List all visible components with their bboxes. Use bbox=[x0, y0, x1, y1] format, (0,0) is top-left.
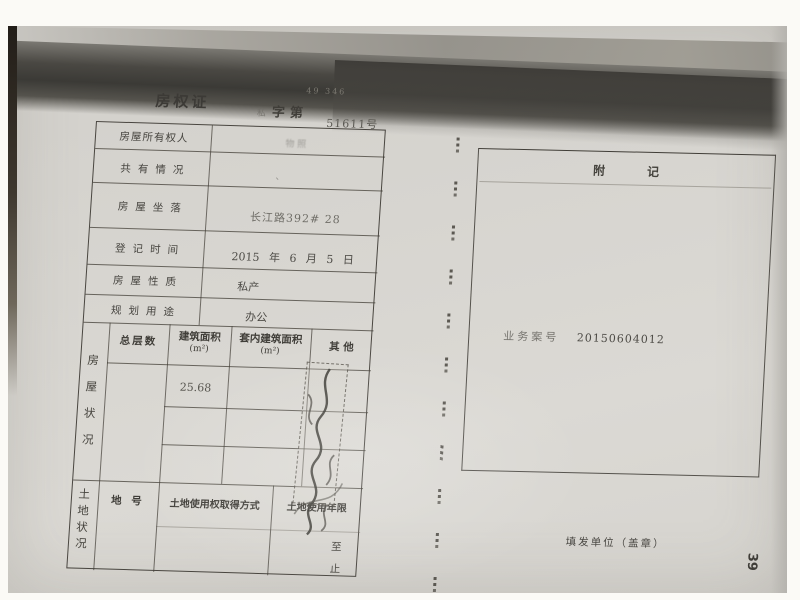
annex-header-char-b: 记 bbox=[647, 163, 660, 180]
grid-line bbox=[153, 324, 170, 572]
header-other: 其 他 bbox=[312, 341, 371, 356]
case-number-row: 业务案号 20150604012 bbox=[503, 328, 665, 348]
certificate-right-page: 附 记 业务案号 20150604012 填发单位（盖章） 39 bbox=[8, 26, 787, 593]
grid-line bbox=[107, 362, 371, 371]
annex-header-underline bbox=[479, 181, 771, 189]
scanned-document-page: 房权证 私 字第 51611号 49 346 bbox=[0, 0, 800, 600]
header-built-area-unit: (m²) bbox=[170, 343, 229, 356]
header-inner-area-unit: (m²) bbox=[232, 345, 309, 358]
tenure-to-label: 至 bbox=[331, 539, 342, 554]
grid-line bbox=[301, 328, 312, 486]
case-number-label: 业务案号 bbox=[503, 330, 560, 344]
issuer-label: 填发单位（盖章） bbox=[565, 534, 666, 551]
grid-line bbox=[267, 485, 274, 575]
grid-line bbox=[221, 326, 232, 484]
grid-line bbox=[162, 444, 366, 451]
perforation-dots bbox=[432, 138, 460, 593]
tenure-end-label: 止 bbox=[329, 561, 340, 576]
annex-box: 附 记 业务案号 20150604012 bbox=[461, 148, 776, 477]
header-land-tenure: 土地使用年限 bbox=[273, 501, 360, 516]
stamp-box bbox=[292, 362, 348, 506]
header-land-acquisition: 土地使用权取得方式 bbox=[159, 498, 270, 514]
photo-of-certificate: 房权证 私 字第 51611号 49 346 bbox=[8, 26, 787, 593]
page-number: 39 bbox=[744, 553, 760, 571]
grid-line bbox=[164, 406, 368, 413]
case-number-value: 20150604012 bbox=[576, 331, 665, 346]
annex-header-char-a: 附 bbox=[593, 162, 606, 179]
annex-header: 附 记 bbox=[478, 159, 775, 183]
handwritten-signature bbox=[279, 364, 364, 538]
built-area-value: 25.68 bbox=[167, 380, 224, 395]
grid-line bbox=[156, 526, 360, 533]
